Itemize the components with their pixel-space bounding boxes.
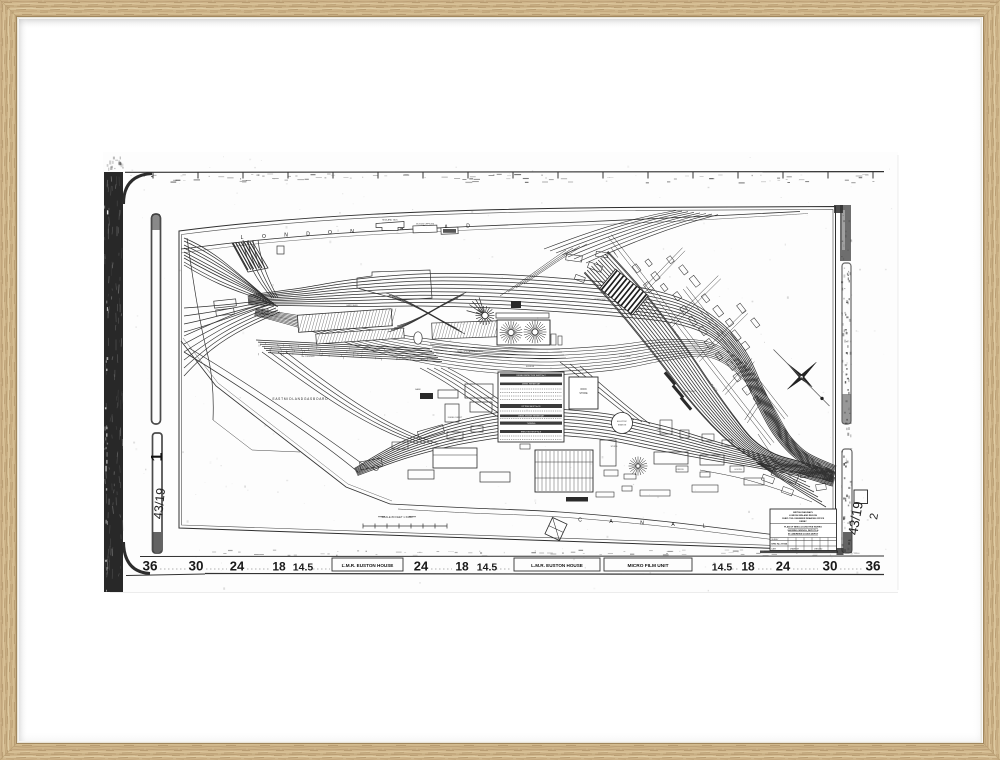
svg-text:CHECKED: CHECKED <box>814 549 823 551</box>
svg-text:N: N <box>640 521 644 527</box>
svg-text:STORE: STORE <box>579 392 588 395</box>
svg-text:ST. ANDREWS GOODS DEPOT: ST. ANDREWS GOODS DEPOT <box>788 532 819 535</box>
svg-text:18: 18 <box>455 560 469 574</box>
svg-text:PLATFORM: PLATFORM <box>595 298 606 301</box>
svg-text:MELTON ST: MELTON ST <box>684 391 696 393</box>
svg-text:36: 36 <box>142 559 158 574</box>
svg-text:30: 30 <box>822 559 837 574</box>
svg-text:LONDON MIDLAND REGION: LONDON MIDLAND REGION <box>789 514 817 517</box>
svg-text:DERBY: DERBY <box>799 521 807 523</box>
svg-text:36: 36 <box>865 559 881 574</box>
svg-text:CHIEF CIVIL ENGINEER DRAWING: CHIEF CIVIL ENGINEER DRAWING OFFICE <box>782 517 825 520</box>
svg-text:D: D <box>306 231 310 237</box>
svg-text:O: O <box>262 234 266 240</box>
svg-text:24: 24 <box>776 559 791 574</box>
svg-text:IRON: IRON <box>581 388 587 391</box>
svg-text:14.5: 14.5 <box>477 562 498 574</box>
svg-text:24: 24 <box>230 559 245 574</box>
svg-text:No 4 SIDINGS: No 4 SIDINGS <box>301 356 315 358</box>
svg-text:L.M.R. EUSTON HOUSE: L.M.R. EUSTON HOUSE <box>342 563 394 568</box>
svg-text:SURVEY: SURVEY <box>772 539 780 541</box>
svg-text:SCALE 80 FEET 1 INCH: SCALE 80 FEET 1 INCH <box>382 515 413 519</box>
svg-text:TURNING: TURNING <box>527 423 536 425</box>
svg-text:OFFICE: OFFICE <box>676 469 684 471</box>
svg-text:NEW CITY CARRIAGE SDG: NEW CITY CARRIAGE SDG <box>457 350 483 353</box>
svg-text:14.5: 14.5 <box>293 562 314 574</box>
svg-text:D: D <box>466 224 470 230</box>
svg-text:UP GOODS: UP GOODS <box>620 356 631 358</box>
svg-text:30: 30 <box>188 559 203 574</box>
svg-text:L: L <box>703 524 706 530</box>
svg-text:SIDINGS: SIDINGS <box>526 366 535 368</box>
svg-text:DRG No 27/106: DRG No 27/106 <box>772 544 788 546</box>
svg-text:O: O <box>328 230 332 236</box>
svg-text:N: N <box>350 229 354 235</box>
svg-text:DIESEL DEPOT: DIESEL DEPOT <box>448 417 463 419</box>
svg-text:C: C <box>578 518 582 524</box>
svg-text:GOODS: GOODS <box>734 469 742 471</box>
svg-text:STORE: STORE <box>611 446 619 448</box>
svg-text:DRAWN BY: DRAWN BY <box>790 548 800 551</box>
svg-text:ELECTRIC: ELECTRIC <box>617 421 627 423</box>
svg-text:MIDLAND GDS: MIDLAND GDS <box>382 219 398 222</box>
svg-text:MICRO FILM UNIT: MICRO FILM UNIT <box>627 563 668 569</box>
svg-text:E A S T M I D L A N D: E A S T M I D L A N D G A S B O A R D <box>272 397 328 401</box>
svg-text:STATION: STATION <box>618 424 627 427</box>
svg-text:18: 18 <box>741 560 755 574</box>
svg-text:FITTING SHOP No 26: FITTING SHOP No 26 <box>522 406 541 408</box>
svg-text:BANK: BANK <box>415 388 421 391</box>
svg-text:18: 18 <box>272 560 286 574</box>
svg-text:ERECTING SHOP No 8: ERECTING SHOP No 8 <box>521 432 541 434</box>
svg-text:BRITISH RAILWAYS: BRITISH RAILWAYS <box>793 511 813 514</box>
svg-text:GOODS OFFICES: GOODS OFFICES <box>416 224 435 226</box>
svg-text:N: N <box>284 233 288 239</box>
svg-text:1: 1 <box>149 452 166 461</box>
svg-text:L.M.R. EUSTON HOUSE: L.M.R. EUSTON HOUSE <box>531 563 583 568</box>
svg-text:DIESEL ENGINE REPAIR BAY: DIESEL ENGINE REPAIR BAY <box>518 415 545 418</box>
svg-text:DIESEL REPAIR BAY: DIESEL REPAIR BAY <box>522 383 541 386</box>
svg-text:24: 24 <box>414 559 429 574</box>
svg-text:PLAN OF NEW LOCOMOTIVE WORKS: PLAN OF NEW LOCOMOTIVE WORKS <box>784 526 822 529</box>
svg-text:CARR SHED: CARR SHED <box>346 304 358 307</box>
svg-text:SHOPS: SHOPS <box>656 429 664 431</box>
